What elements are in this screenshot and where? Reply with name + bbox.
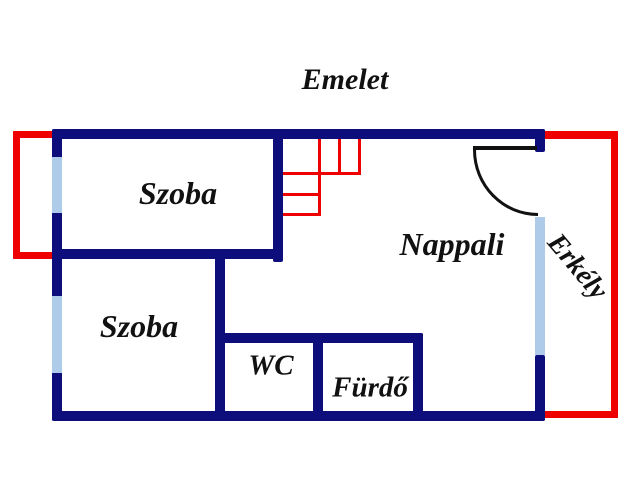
balcony-outline-left-bottom: [13, 252, 57, 259]
wall-szoba-top-right: [273, 129, 283, 262]
door-swing-icon: [473, 150, 538, 216]
room-label-wc: WC: [248, 352, 293, 381]
wall-szoba-divider: [52, 249, 283, 259]
stairs-riser-1: [318, 139, 321, 216]
window-right: [535, 217, 545, 355]
wall-exterior-top: [52, 129, 545, 139]
room-label-szoba-top: Szoba: [139, 177, 217, 209]
stairs-tread-2: [282, 193, 321, 196]
balcony-outline-left-side: [13, 131, 20, 259]
wall-furdo-right: [413, 333, 423, 421]
balcony-outline-right-top: [540, 131, 618, 139]
floor-title: Emelet: [302, 65, 389, 95]
stairs-tread-3: [282, 213, 321, 216]
room-label-nappali: Nappali: [400, 228, 505, 260]
wall-exterior-bottom: [52, 411, 545, 421]
stairs-riser-2: [338, 139, 341, 175]
window-left-bottom: [52, 296, 62, 373]
balcony-outline-right-bottom: [543, 411, 618, 418]
wall-wc-furdo-divider: [313, 333, 323, 421]
window-left-top: [52, 157, 62, 213]
wall-exterior-right-low: [535, 355, 545, 421]
stairs-tread-1: [282, 172, 361, 175]
floor-plan: Emelet Szoba Szoba Nappali WC Fürdő Erké…: [0, 0, 640, 480]
room-label-szoba-bottom: Szoba: [100, 310, 178, 342]
room-label-furdo: Fürdő: [332, 374, 408, 403]
stairs-riser-3: [358, 139, 361, 175]
balcony-outline-right-side: [611, 131, 618, 418]
room-label-erkely: Erkély: [542, 229, 612, 305]
